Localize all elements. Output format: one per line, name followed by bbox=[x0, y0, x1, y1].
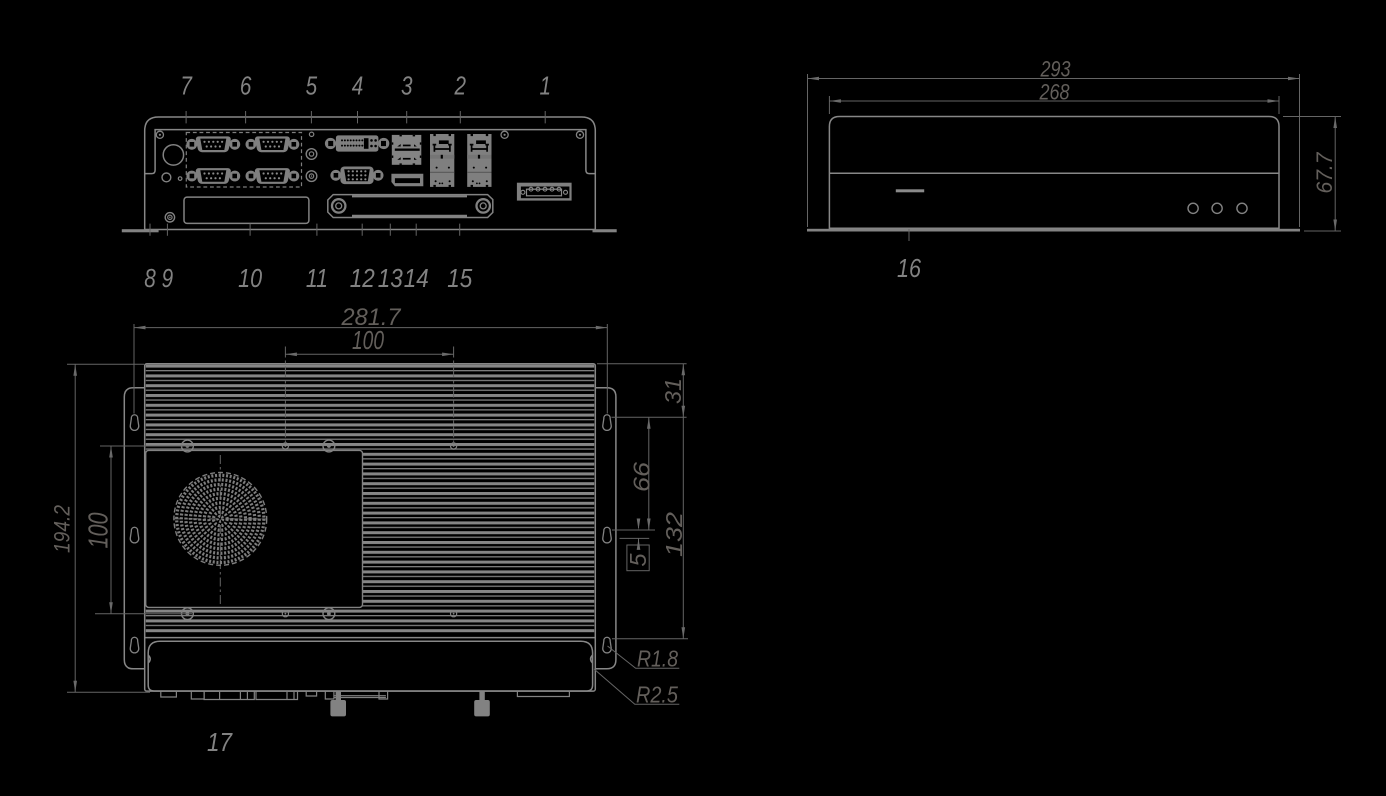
svg-text:4: 4 bbox=[352, 71, 364, 101]
svg-text:1: 1 bbox=[539, 71, 551, 101]
svg-text:100: 100 bbox=[83, 512, 114, 548]
svg-text:132: 132 bbox=[661, 512, 687, 557]
svg-text:13: 13 bbox=[378, 263, 403, 293]
svg-text:R1.8: R1.8 bbox=[637, 646, 678, 672]
svg-text:194.2: 194.2 bbox=[50, 505, 75, 553]
svg-text:2: 2 bbox=[454, 71, 467, 101]
svg-text:31: 31 bbox=[660, 378, 686, 404]
svg-text:3: 3 bbox=[401, 71, 413, 101]
svg-text:7: 7 bbox=[180, 71, 193, 101]
svg-text:R2.5: R2.5 bbox=[636, 682, 678, 708]
svg-text:15: 15 bbox=[447, 263, 472, 293]
svg-text:11: 11 bbox=[306, 263, 328, 293]
svg-text:293: 293 bbox=[1040, 57, 1071, 82]
svg-text:9: 9 bbox=[162, 263, 174, 293]
svg-text:8: 8 bbox=[144, 263, 156, 293]
svg-text:16: 16 bbox=[897, 253, 921, 283]
svg-text:10: 10 bbox=[238, 263, 262, 293]
svg-text:5: 5 bbox=[625, 553, 651, 566]
svg-text:14: 14 bbox=[404, 263, 429, 293]
svg-text:17: 17 bbox=[207, 727, 233, 757]
svg-text:6: 6 bbox=[240, 71, 252, 101]
svg-text:67.7: 67.7 bbox=[1312, 152, 1337, 194]
svg-text:12: 12 bbox=[350, 263, 375, 293]
svg-text:268: 268 bbox=[1039, 80, 1070, 105]
svg-text:66: 66 bbox=[629, 462, 655, 492]
svg-text:100: 100 bbox=[352, 325, 384, 355]
svg-text:5: 5 bbox=[306, 71, 318, 101]
